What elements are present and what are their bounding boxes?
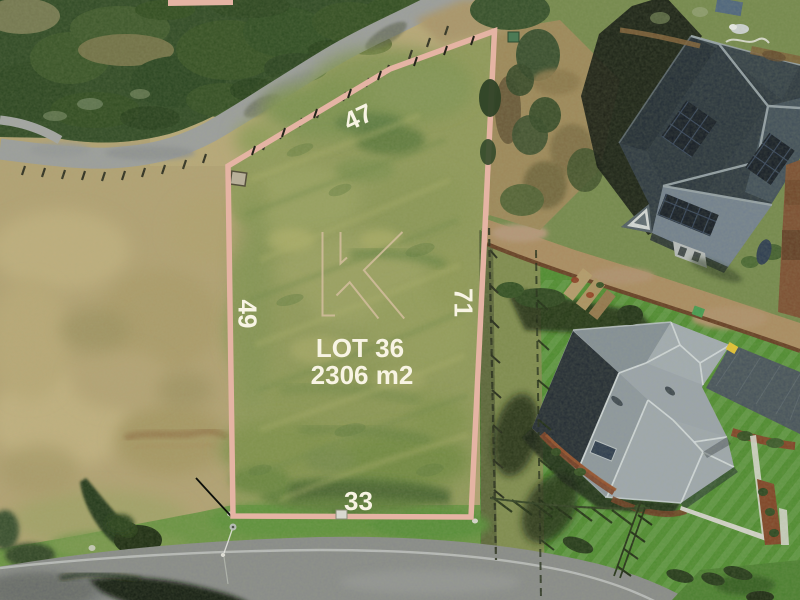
svg-text:2306 m2: 2306 m2 <box>311 360 414 390</box>
svg-text:LOT 36: LOT 36 <box>316 333 404 363</box>
svg-text:33: 33 <box>344 486 373 516</box>
svg-text:49: 49 <box>233 300 263 329</box>
svg-text:71: 71 <box>449 288 479 317</box>
